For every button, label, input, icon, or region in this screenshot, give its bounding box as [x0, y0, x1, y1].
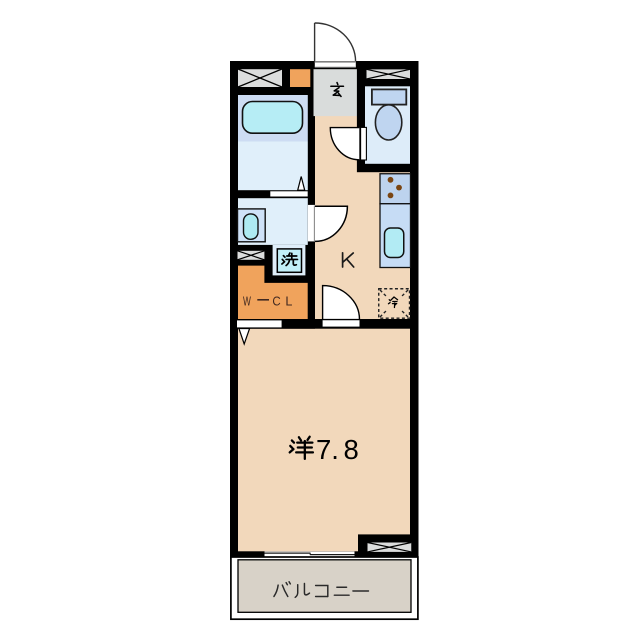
svg-text:7.8: 7.8	[316, 434, 359, 465]
svg-text:W: W	[243, 293, 251, 308]
svg-text:L: L	[285, 293, 292, 308]
svg-text:C: C	[272, 293, 280, 308]
